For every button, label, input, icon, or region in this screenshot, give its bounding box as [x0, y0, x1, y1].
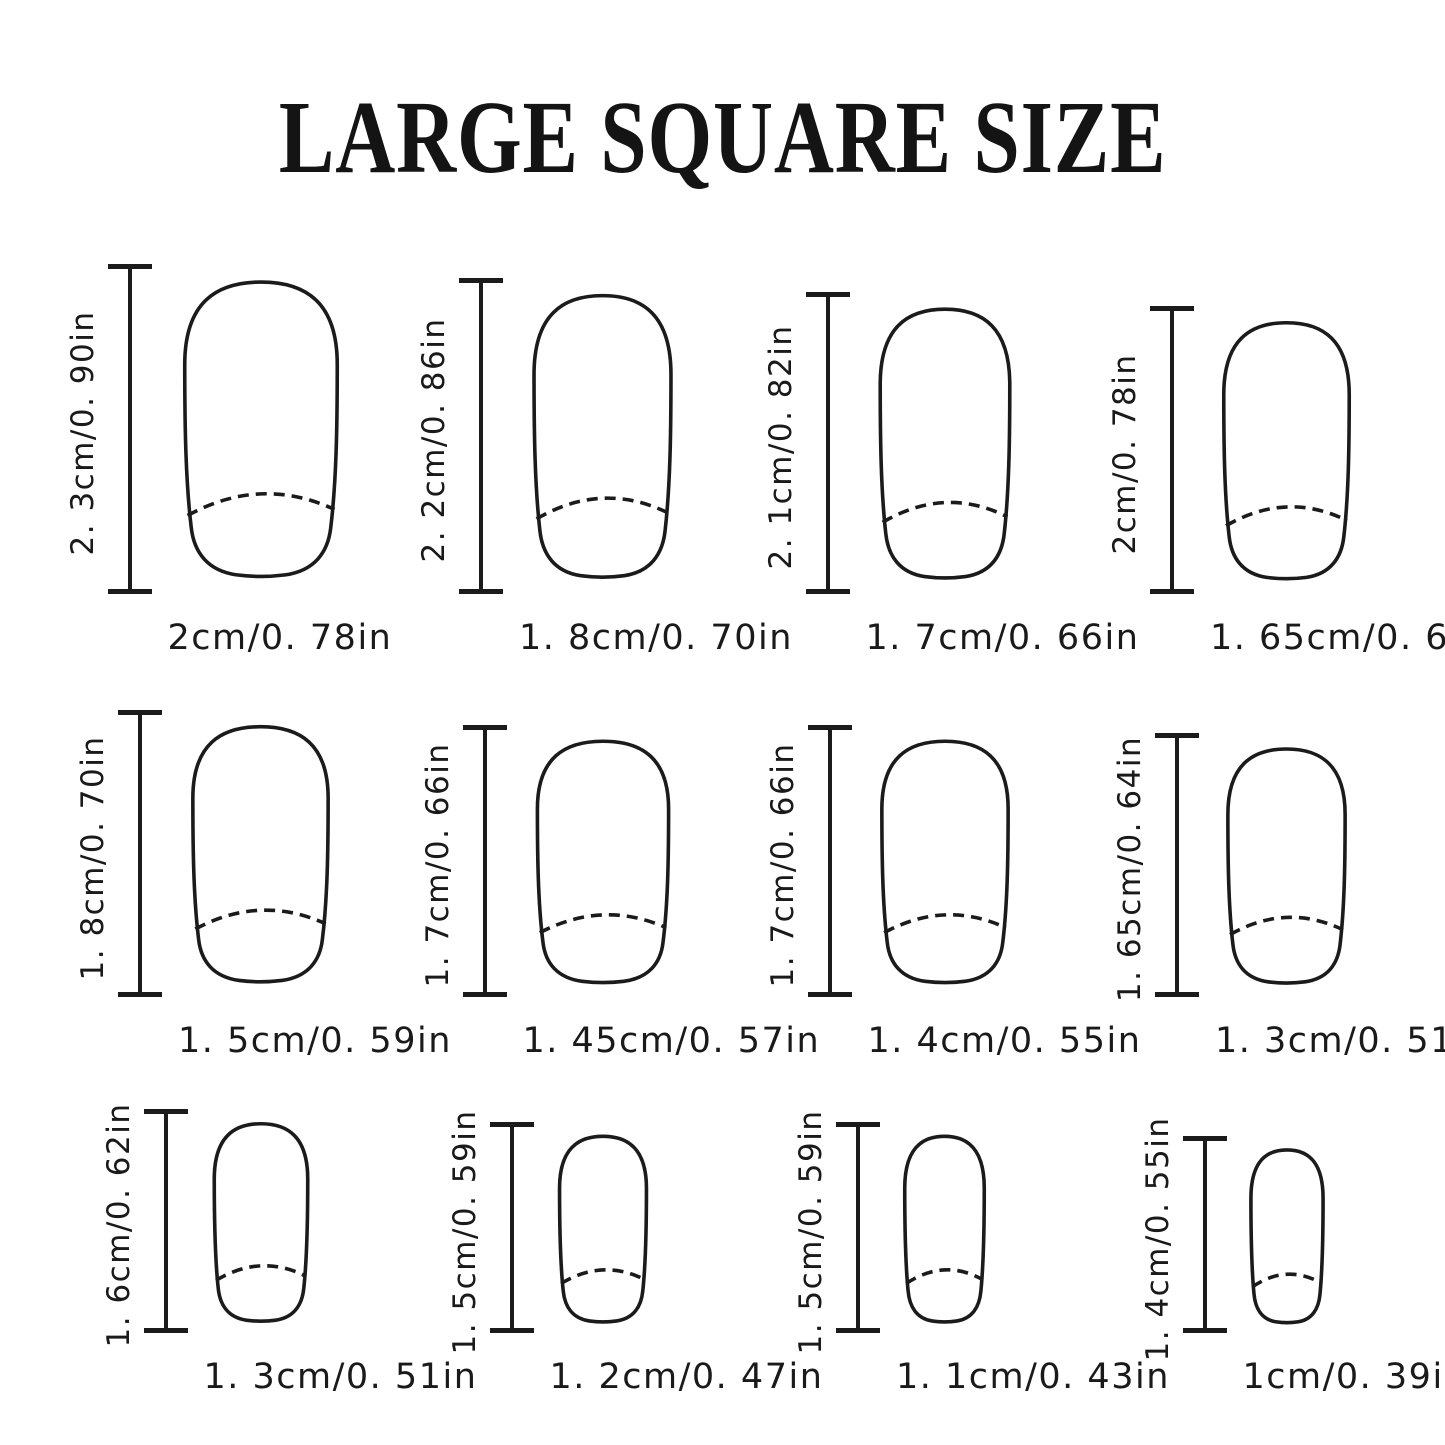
measure-bottom-cap [144, 1328, 188, 1333]
nail-height-label-text: 2. 3cm/0. 90in [65, 311, 101, 556]
measure-stem [138, 715, 142, 992]
nail-diagram: 1. 5cm/0. 59in [794, 1122, 993, 1333]
nail-outline [896, 1130, 993, 1333]
measure-stem [1175, 738, 1179, 992]
nail-outline-path [214, 1124, 307, 1321]
smile-dashed-line [882, 502, 1007, 522]
height-measure-line [806, 292, 850, 594]
height-measure-line [1183, 1136, 1227, 1333]
measure-stem [826, 297, 830, 589]
nail-cell-4: 2cm/0. 78in 1. 65cm/0. 64in [1065, 306, 1407, 664]
nail-width-label: 1. 2cm/0. 47in [550, 1357, 656, 1403]
smile-dashed-line [1230, 917, 1343, 934]
nail-outline-path [905, 1136, 985, 1322]
measure-stem [1170, 311, 1174, 589]
nail-height-label: 1. 8cm/0. 70in [76, 718, 110, 997]
nail-height-label-text: 1. 5cm/0. 59in [793, 1109, 829, 1354]
nail-width-label: 1. 5cm/0. 59in [178, 1021, 343, 1067]
size-chart-page: LARGE SQUARE SIZE 2. 3cm/0. 90in 2cm/0. … [0, 0, 1445, 1445]
height-measure-line [108, 264, 152, 594]
nail-diagram: 1. 7cm/0. 66in [766, 725, 1022, 997]
nail-width-label: 1. 4cm/0. 55in [868, 1021, 1022, 1067]
smile-dashed-line [1226, 507, 1347, 526]
height-measure-line [459, 278, 503, 594]
smile-dashed-line [195, 910, 325, 929]
measure-bottom-cap [1183, 1328, 1227, 1333]
nail-diagram: 1. 7cm/0. 66in [421, 725, 683, 997]
height-measure-line [144, 1109, 188, 1333]
nail-height-label: 2. 2cm/0. 86in [417, 286, 451, 594]
nail-diagram: 2cm/0. 78in [1108, 306, 1363, 594]
measure-bottom-cap [836, 1328, 880, 1333]
height-measure-line [836, 1122, 880, 1333]
nail-height-label-text: 1. 5cm/0. 59in [447, 1109, 483, 1354]
smile-dashed-line [906, 1270, 983, 1284]
measure-bottom-cap [490, 1328, 534, 1333]
nail-outline [868, 733, 1022, 997]
nail-height-label-text: 1. 8cm/0. 70in [75, 735, 111, 980]
smile-dashed-line [1252, 1274, 1322, 1287]
nail-cell-2: 2. 2cm/0. 86in 1. 8cm/0. 70in [381, 278, 723, 664]
measure-bottom-cap [463, 992, 507, 997]
measure-stem [128, 269, 132, 589]
nail-cell-10: 1. 5cm/0. 59in 1. 2cm/0. 47in [381, 1122, 723, 1403]
nail-outline-path [534, 296, 671, 578]
height-measure-line [808, 725, 852, 997]
nail-outline [1215, 741, 1358, 997]
nail-height-label-text: 2. 2cm/0. 86in [416, 318, 452, 563]
nail-outline [178, 718, 343, 997]
nail-width-label: 1cm/0. 39in [1243, 1357, 1331, 1403]
size-row-3: 1. 6cm/0. 62in 1. 3cm/0. 51in 1. 5cm/0. … [0, 1109, 1445, 1403]
nail-cell-11: 1. 5cm/0. 59in 1. 1cm/0. 43in [723, 1122, 1065, 1403]
measure-stem [1203, 1141, 1207, 1328]
nail-height-label-text: 1. 7cm/0. 66in [765, 743, 801, 988]
nail-diagram: 1. 4cm/0. 55in [1141, 1136, 1331, 1333]
size-row-1: 2. 3cm/0. 90in 2cm/0. 78in 2. 2cm/0. 86i… [0, 264, 1445, 664]
nail-cell-12: 1. 4cm/0. 55in 1cm/0. 39in [1065, 1136, 1407, 1403]
nail-height-label: 1. 6cm/0. 62in [102, 1117, 136, 1333]
nail-height-label: 2. 3cm/0. 90in [66, 272, 100, 594]
nail-diagram: 1. 8cm/0. 70in [76, 710, 343, 997]
nail-width-label: 1. 3cm/0. 51in [1215, 1021, 1358, 1067]
measure-stem [856, 1127, 860, 1328]
nail-height-label-text: 1. 65cm/0. 64in [1112, 736, 1148, 1002]
nail-height-label-text: 1. 6cm/0. 62in [101, 1103, 137, 1348]
nail-diagram: 2. 1cm/0. 82in [764, 292, 1024, 594]
smile-dashed-line [539, 915, 665, 933]
nail-cell-7: 1. 7cm/0. 66in 1. 4cm/0. 55in [723, 725, 1065, 1067]
nail-width-label: 1. 8cm/0. 70in [519, 618, 686, 664]
smile-dashed-line [561, 1270, 645, 1284]
nail-diagram: 2. 2cm/0. 86in [417, 278, 686, 594]
nail-outline [519, 286, 686, 594]
nail-height-label: 1. 4cm/0. 55in [1141, 1144, 1175, 1333]
measure-bottom-cap [1155, 992, 1199, 997]
smile-dashed-line [884, 915, 1006, 933]
measure-bottom-cap [808, 992, 852, 997]
height-measure-line [118, 710, 162, 997]
smile-dashed-line [537, 498, 669, 519]
nail-height-label-text: 1. 4cm/0. 55in [1140, 1116, 1176, 1361]
nail-outline-path [881, 741, 1007, 982]
nail-height-label-text: 2cm/0. 78in [1107, 353, 1143, 554]
nail-outline-path [1228, 749, 1345, 983]
nail-width-label: 1. 7cm/0. 66in [866, 618, 1024, 664]
nail-width-label: 2cm/0. 78in [168, 618, 354, 664]
measure-stem [483, 730, 487, 992]
nail-outline [204, 1117, 318, 1333]
nail-cell-8: 1. 65cm/0. 64in 1. 3cm/0. 51in [1065, 733, 1407, 1067]
nail-outline-path [537, 741, 668, 982]
nail-diagram: 2. 3cm/0. 90in [66, 264, 354, 594]
nail-height-label: 1. 65cm/0. 64in [1113, 741, 1147, 997]
height-measure-line [463, 725, 507, 997]
measure-stem [479, 283, 483, 589]
nail-outline-path [184, 282, 337, 576]
nail-cell-1: 2. 3cm/0. 90in 2cm/0. 78in [39, 264, 381, 664]
nail-diagram: 1. 6cm/0. 62in [102, 1109, 318, 1333]
measure-bottom-cap [459, 589, 503, 594]
measure-bottom-cap [1150, 589, 1194, 594]
nail-width-label: 1. 65cm/0. 64in [1210, 618, 1363, 664]
nail-outline-path [193, 727, 328, 982]
measure-stem [828, 730, 832, 992]
nail-outline-path [559, 1136, 646, 1322]
nail-outline [866, 300, 1024, 594]
nail-cell-9: 1. 6cm/0. 62in 1. 3cm/0. 51in [39, 1109, 381, 1403]
height-measure-line [1155, 733, 1199, 997]
nail-width-label: 1. 45cm/0. 57in [523, 1021, 683, 1067]
nail-height-label: 1. 7cm/0. 66in [421, 733, 455, 997]
smile-dashed-line [187, 494, 334, 516]
nail-outline [1243, 1144, 1331, 1333]
measure-bottom-cap [118, 992, 162, 997]
nail-outline-path [1250, 1150, 1322, 1323]
nail-height-label: 1. 5cm/0. 59in [448, 1130, 482, 1333]
nail-height-label: 1. 7cm/0. 66in [766, 733, 800, 997]
height-measure-line [1150, 306, 1194, 594]
nail-outline [1210, 314, 1363, 594]
nail-height-label: 1. 5cm/0. 59in [794, 1130, 828, 1333]
nail-diagram: 1. 5cm/0. 59in [448, 1122, 656, 1333]
nail-height-label: 2. 1cm/0. 82in [764, 300, 798, 594]
nail-cell-3: 2. 1cm/0. 82in 1. 7cm/0. 66in [723, 292, 1065, 664]
measure-bottom-cap [108, 589, 152, 594]
measure-bottom-cap [806, 589, 850, 594]
page-title-text: LARGE SQUARE SIZE [279, 86, 1166, 190]
nail-cell-5: 1. 8cm/0. 70in 1. 5cm/0. 59in [39, 710, 381, 1067]
nail-height-label-text: 1. 7cm/0. 66in [420, 743, 456, 988]
nail-height-label-text: 2. 1cm/0. 82in [763, 325, 799, 570]
nail-diagram: 1. 65cm/0. 64in [1113, 733, 1358, 997]
size-row-2: 1. 8cm/0. 70in 1. 5cm/0. 59in 1. 7cm/0. … [0, 710, 1445, 1067]
nail-outline-path [880, 309, 1010, 578]
nail-outline [523, 733, 683, 997]
nail-cell-6: 1. 7cm/0. 66in 1. 45cm/0. 57in [381, 725, 723, 1067]
nail-width-label: 1. 3cm/0. 51in [204, 1357, 318, 1403]
nail-outline [168, 272, 354, 594]
measure-stem [510, 1127, 514, 1328]
measure-stem [164, 1114, 168, 1328]
page-title: LARGE SQUARE SIZE [0, 0, 1445, 196]
smile-dashed-line [215, 1266, 305, 1281]
nail-outline [550, 1130, 656, 1333]
height-measure-line [490, 1122, 534, 1333]
nail-height-label: 2cm/0. 78in [1108, 314, 1142, 594]
nail-outline-path [1224, 323, 1349, 579]
nail-width-label: 1. 1cm/0. 43in [896, 1357, 993, 1403]
